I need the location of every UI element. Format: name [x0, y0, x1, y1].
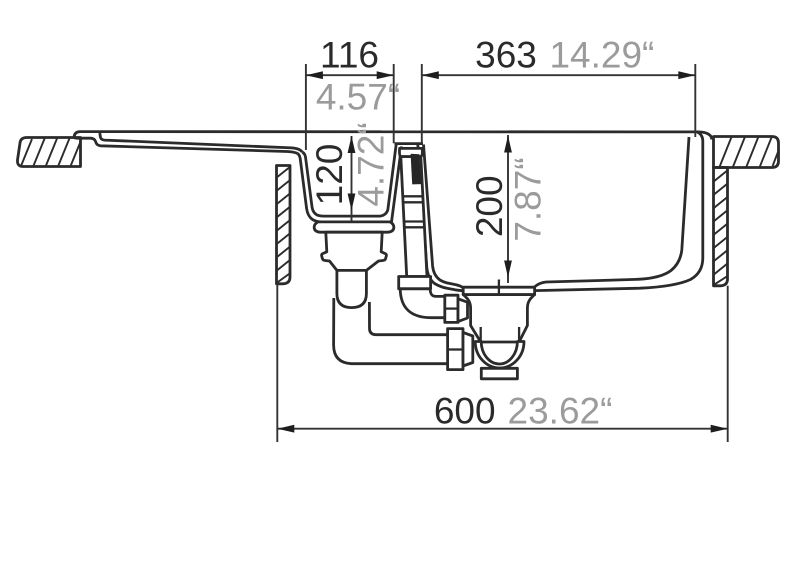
svg-text:23.62“: 23.62“	[508, 391, 613, 432]
svg-text:4.57“: 4.57“	[316, 77, 400, 118]
svg-text:600: 600	[434, 391, 496, 432]
svg-text:363: 363	[475, 35, 537, 76]
svg-text:116: 116	[320, 35, 379, 76]
svg-text:200: 200	[469, 175, 510, 237]
svg-text:14.29“: 14.29“	[549, 35, 654, 76]
svg-text:120: 120	[309, 144, 350, 206]
svg-text:4.72“: 4.72“	[351, 122, 392, 206]
svg-text:7.87“: 7.87“	[508, 157, 549, 241]
